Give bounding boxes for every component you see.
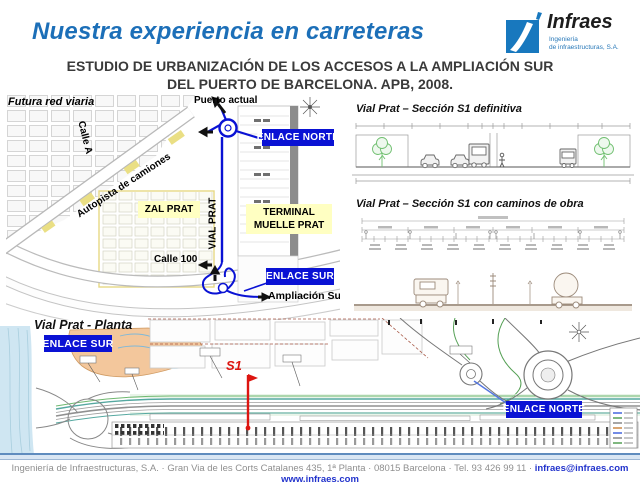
- section-s1-obra-drawing: [350, 213, 636, 318]
- subtitle-line-2: DEL PUERTO DE BARCELONA. APB, 2008.: [30, 76, 590, 94]
- logo-name: Infraes: [547, 11, 613, 34]
- label-calle-100: Calle 100: [154, 254, 197, 265]
- zal-prat-label: ZAL PRAT: [138, 201, 200, 218]
- label-futura-red-viaria: Futura red viaria: [8, 96, 94, 108]
- logo-tagline: Ingeniería de infraestructuras, S.A.: [549, 36, 619, 52]
- label-puerto-actual: Puerto actual: [194, 95, 257, 106]
- label-vial-prat: VIAL PRAT: [208, 194, 219, 254]
- slide: Nuestra experiencia en carreteras Infrae…: [0, 0, 640, 482]
- enlace-norte-plan-label: ENLACE NORTE: [506, 401, 582, 418]
- footer: Ingeniería de Infraestructuras, S.A. · G…: [0, 463, 640, 482]
- label-ampliacion-sur: Ampliación Sur: [268, 290, 340, 302]
- page-title: Nuestra experiencia en carreteras: [32, 18, 424, 46]
- terminal-muelle-prat-label: TERMINAL MUELLE PRAT: [246, 204, 332, 234]
- footer-address: Ingeniería de Infraestructuras, S.A. · G…: [12, 463, 533, 474]
- footer-website-link[interactable]: www.infraes.com: [281, 474, 359, 482]
- section-s1-definitiva-drawing: [350, 119, 636, 187]
- section-s1-definitiva-title: Vial Prat – Sección S1 definitiva: [356, 103, 522, 115]
- enlace-sur-plan-label: ENLACE SUR: [44, 335, 112, 352]
- location-map: Futura red viaria Calle A Autopista de c…: [6, 94, 340, 320]
- footer-email-link[interactable]: infraes@infraes.com: [535, 463, 629, 474]
- s1-marker-label: S1: [226, 358, 242, 373]
- enlace-sur-map-label: ENLACE SUR: [266, 268, 334, 285]
- subtitle-line-1: ESTUDIO DE URBANIZACIÓN DE LOS ACCESOS A…: [30, 58, 590, 76]
- plan-legend: [610, 408, 637, 448]
- plan-title: Vial Prat - Planta: [34, 318, 132, 332]
- company-logo: Infraes Ingeniería de infraestructuras, …: [505, 11, 637, 59]
- plan-view: Vial Prat - Planta ENLACE SUR ENLACE NOR…: [0, 318, 640, 455]
- study-subtitle: ESTUDIO DE URBANIZACIÓN DE LOS ACCESOS A…: [30, 58, 590, 93]
- infraes-logo-icon: [505, 11, 545, 57]
- section-s1-obra-title: Vial Prat – Sección S1 con caminos de ob…: [356, 198, 584, 210]
- footer-separator: [0, 453, 640, 460]
- compass-icon: [300, 97, 320, 117]
- enlace-norte-map-label: ENLACE NORTE: [262, 129, 334, 146]
- plan-compass-icon: [569, 322, 589, 342]
